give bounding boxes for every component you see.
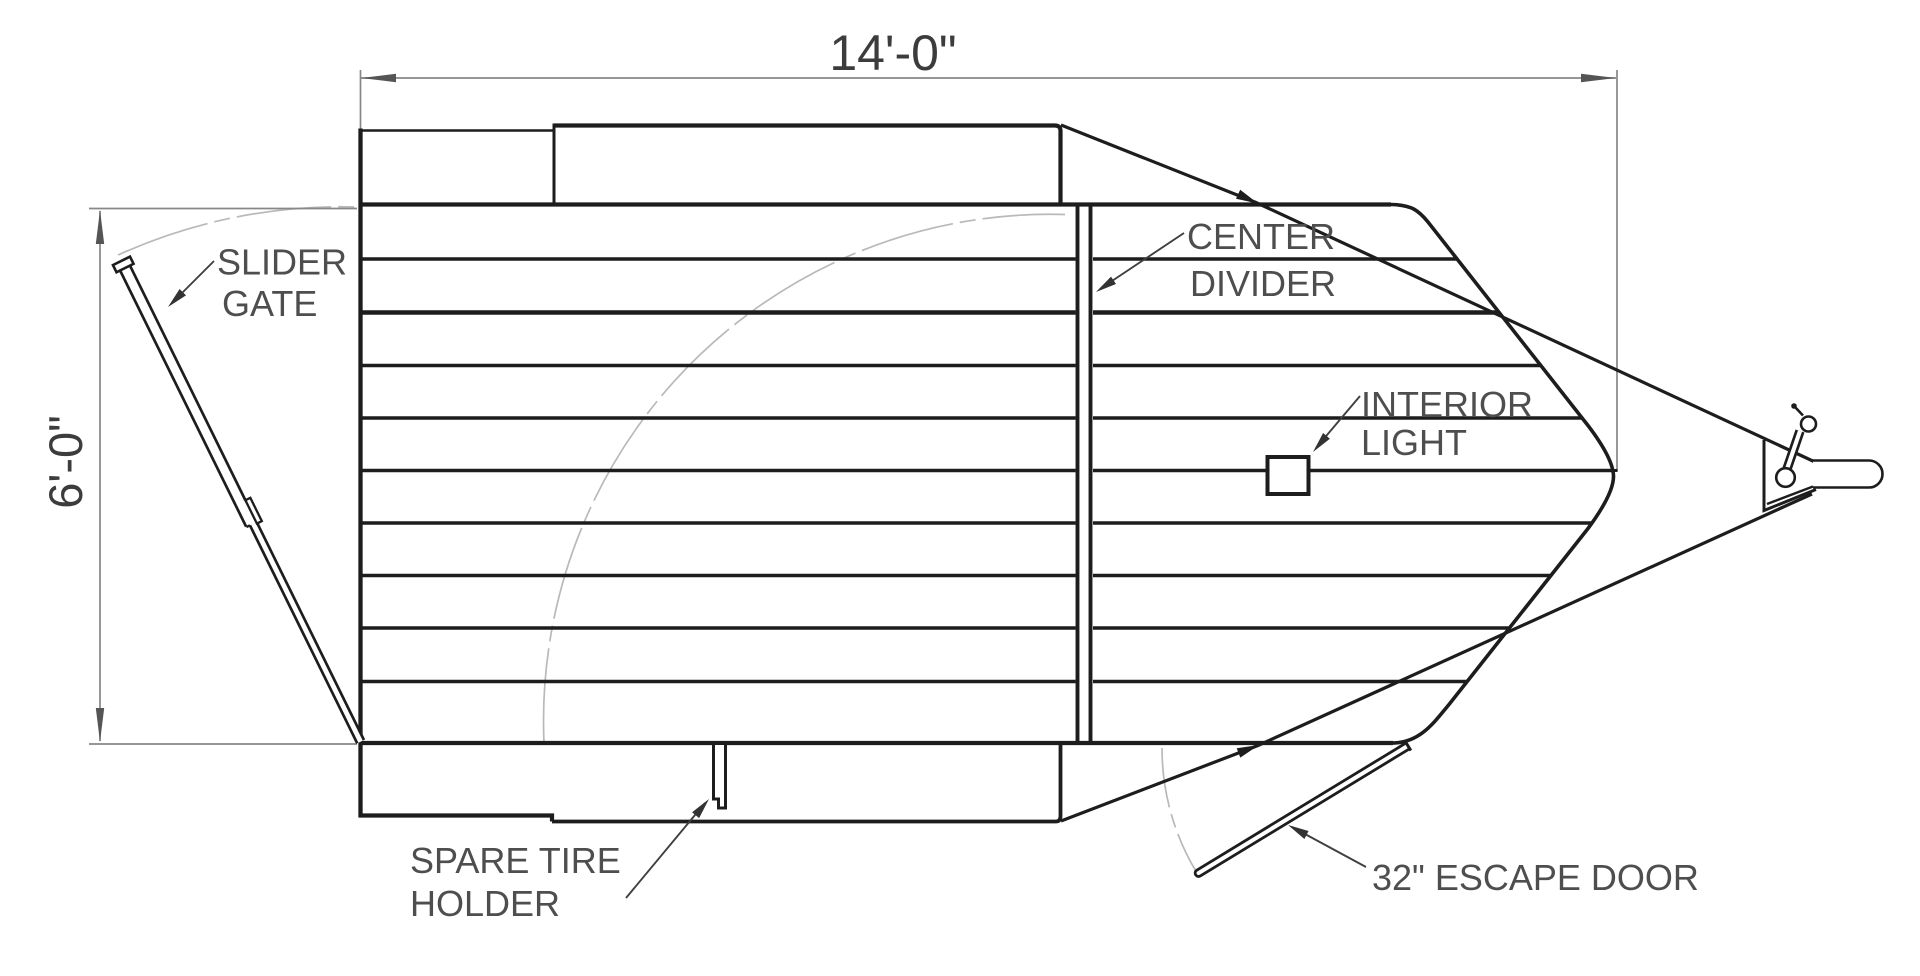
svg-text:SLIDER: SLIDER: [217, 242, 347, 283]
svg-text:SPARE TIRE: SPARE TIRE: [410, 840, 621, 881]
svg-text:6'-0": 6'-0": [39, 415, 92, 509]
svg-text:DIVIDER: DIVIDER: [1190, 263, 1336, 304]
svg-text:32" ESCAPE DOOR: 32" ESCAPE DOOR: [1372, 857, 1699, 898]
svg-text:LIGHT: LIGHT: [1361, 422, 1467, 463]
svg-text:14'-0": 14'-0": [829, 25, 956, 81]
svg-text:INTERIOR: INTERIOR: [1361, 384, 1533, 425]
svg-text:GATE: GATE: [222, 283, 317, 324]
svg-text:CENTER: CENTER: [1187, 216, 1335, 257]
svg-text:HOLDER: HOLDER: [410, 883, 560, 924]
